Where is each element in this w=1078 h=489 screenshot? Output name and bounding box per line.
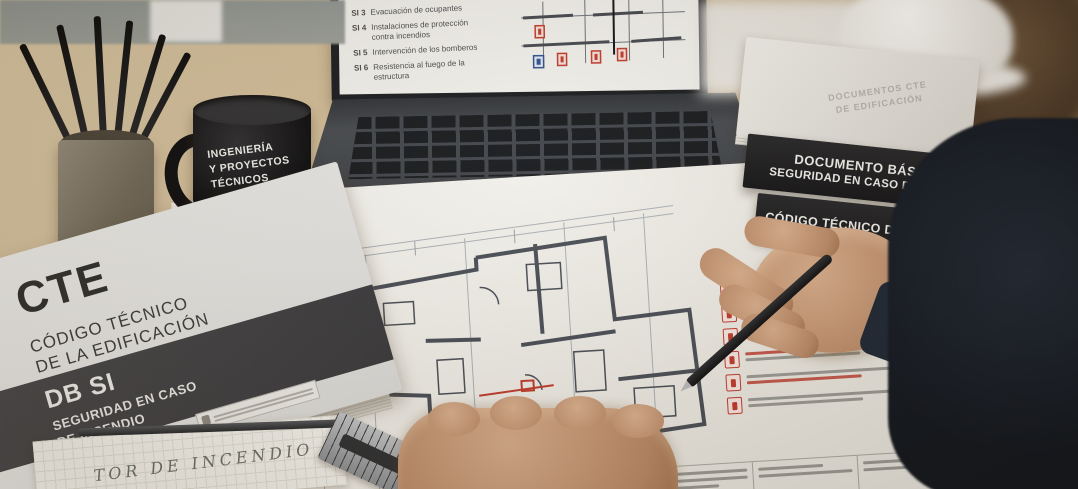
handwritten-note: TOR DE INCENDIO (93, 439, 315, 485)
knuckle (554, 396, 606, 430)
titleblock-cell (752, 456, 861, 489)
pen-holder (50, 78, 170, 226)
detector-icon (727, 397, 743, 415)
si6-code: SI 6 (354, 63, 369, 84)
si5-text: Intervención de los bomberos (372, 43, 477, 58)
cte-title: CTE (10, 252, 114, 326)
si6-text: Resistencia al fuego de la estructura (373, 57, 492, 83)
slide-item-si4: SI 4 Instalaciones de protección contra … (352, 16, 506, 43)
photo-scene: SI 3 Evacuación de ocupantes SI 4 Instal… (0, 0, 1078, 489)
slide-floorplan-drawing (507, 0, 699, 92)
si4-code: SI 4 (352, 23, 367, 44)
left-hand (398, 408, 678, 489)
knuckle (428, 402, 480, 436)
si4-text: Instalaciones de protección contra incen… (371, 17, 490, 43)
slide-item-si5: SI 5 Intervención de los bomberos (353, 41, 506, 58)
laptop-screen: SI 3 Evacuación de ocupantes SI 4 Instal… (330, 0, 708, 105)
slide-item-si6: SI 6 Resistencia al fuego de la estructu… (354, 56, 508, 83)
slide-floorplan (507, 0, 699, 92)
si3-text: Evacuación de ocupantes (370, 3, 462, 17)
slide-bullet-list: SI 3 Evacuación de ocupantes SI 4 Instal… (338, 0, 510, 95)
si3-code: SI 3 (351, 8, 366, 19)
hose-icon (725, 374, 741, 392)
person-shoulder (888, 118, 1078, 489)
slide-item-si3: SI 3 Evacuación de ocupantes (351, 1, 504, 18)
presentation-slide: SI 3 Evacuación de ocupantes SI 4 Instal… (338, 0, 699, 95)
legend-row (727, 386, 913, 414)
si5-code: SI 5 (353, 48, 368, 59)
knuckle (612, 404, 664, 438)
knuckle (490, 396, 542, 430)
mug-rim (193, 95, 311, 125)
pile-faint-title: DOCUMENTOS CTE DE EDIFICACIÓN (827, 78, 929, 117)
